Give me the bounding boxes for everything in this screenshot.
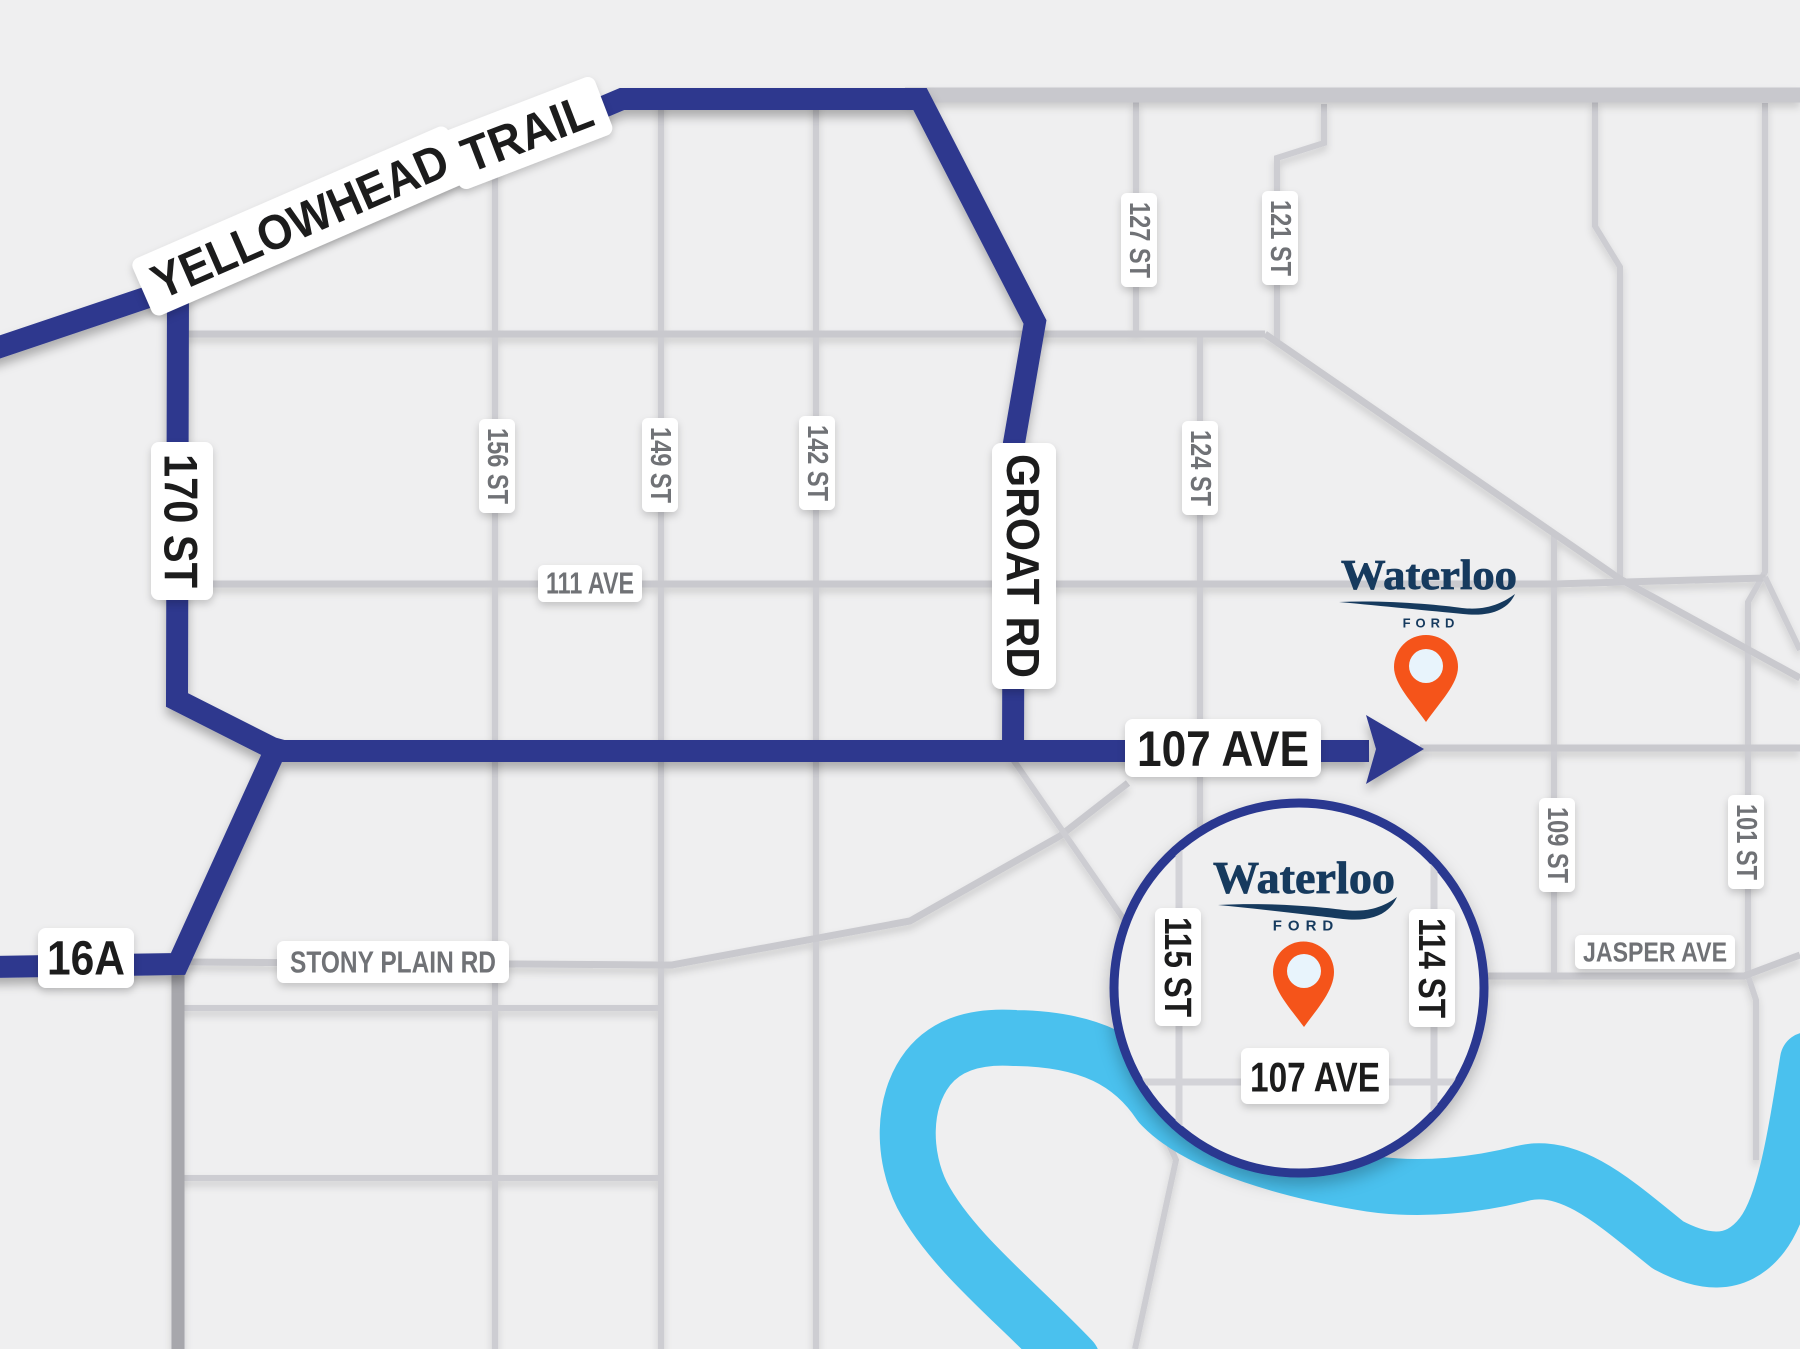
svg-text:101 ST: 101 ST	[1730, 804, 1762, 880]
svg-text:115 ST: 115 ST	[1156, 917, 1198, 1017]
svg-text:16A: 16A	[47, 933, 125, 986]
svg-text:142 ST: 142 ST	[801, 425, 833, 501]
svg-text:124 ST: 124 ST	[1184, 430, 1216, 506]
svg-text:FORD: FORD	[1273, 918, 1340, 935]
svg-text:STONY PLAIN RD: STONY PLAIN RD	[290, 945, 496, 980]
svg-text:156 ST: 156 ST	[481, 428, 513, 504]
svg-text:114 ST: 114 ST	[1410, 918, 1452, 1018]
svg-text:109 ST: 109 ST	[1541, 807, 1573, 883]
svg-text:Waterloo: Waterloo	[1213, 853, 1395, 903]
svg-text:JASPER AVE: JASPER AVE	[1583, 937, 1727, 968]
svg-text:121 ST: 121 ST	[1264, 200, 1296, 276]
svg-text:111 AVE: 111 AVE	[546, 566, 634, 601]
svg-text:107 AVE: 107 AVE	[1250, 1054, 1380, 1101]
svg-text:FORD: FORD	[1403, 616, 1460, 631]
svg-text:127 ST: 127 ST	[1123, 202, 1155, 278]
svg-text:170 ST: 170 ST	[155, 454, 208, 588]
svg-text:107 AVE: 107 AVE	[1137, 721, 1309, 777]
svg-text:149 ST: 149 ST	[644, 427, 676, 503]
svg-text:Waterloo: Waterloo	[1341, 553, 1517, 599]
svg-text:GROAT RD: GROAT RD	[997, 454, 1049, 678]
